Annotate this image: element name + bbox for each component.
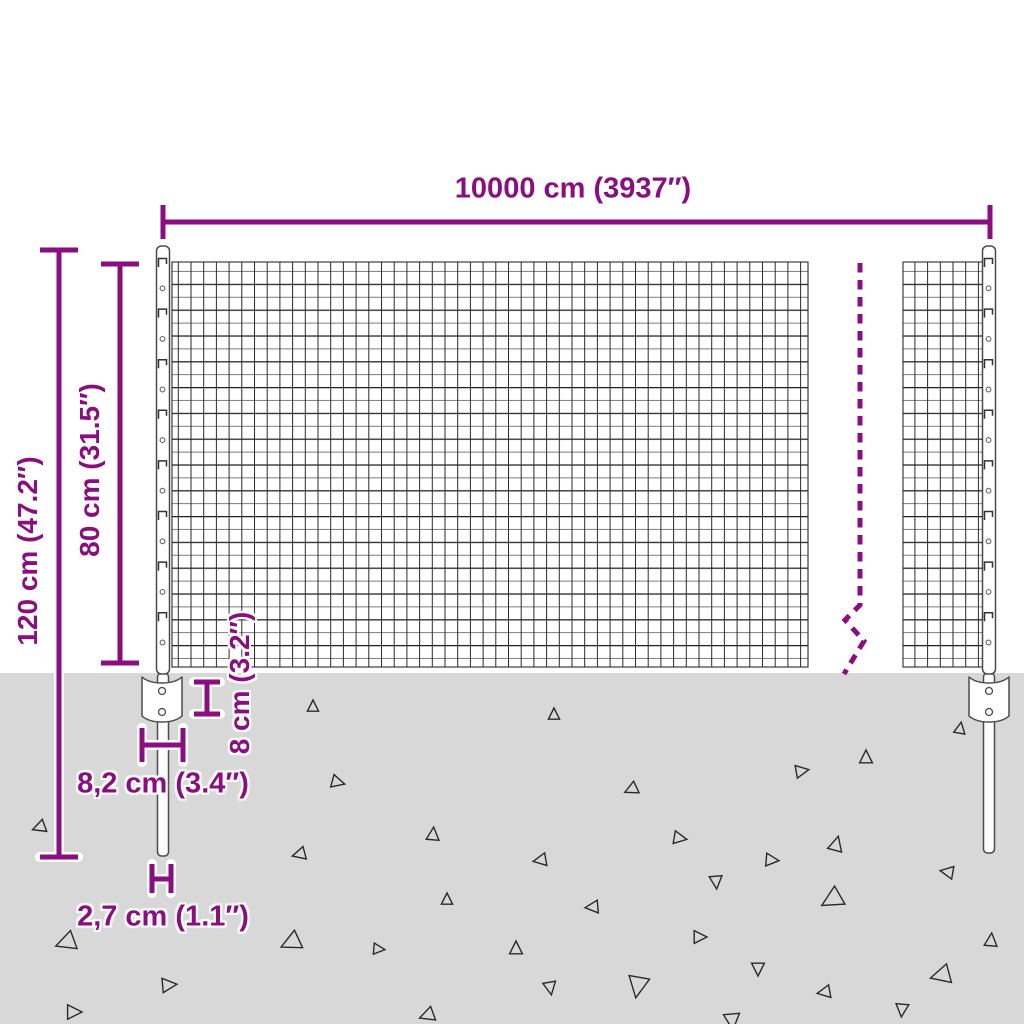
- soil-triangle: [817, 886, 845, 914]
- post-hole: [986, 488, 991, 493]
- dim-post-diameter-label: 2,7 cm (1.1″): [77, 903, 249, 932]
- soil-triangle: [291, 847, 307, 863]
- fence-diagram-drawing: [0, 0, 1024, 1024]
- soil-triangle: [694, 931, 707, 944]
- dim-width-line: [163, 205, 990, 239]
- soil-triangle: [895, 1004, 909, 1018]
- soil-triangle: [752, 963, 765, 976]
- soil-triangle: [816, 985, 831, 1000]
- dim-width-label: 10000 cm (3937″): [455, 175, 691, 204]
- plate-hole: [159, 709, 166, 716]
- post-hole: [986, 286, 991, 291]
- post-hole: [986, 640, 991, 645]
- soil-triangle: [417, 1006, 435, 1024]
- soil-triangle: [162, 977, 178, 993]
- dim-total-height-line: [40, 250, 78, 857]
- plate-hole: [986, 709, 993, 716]
- post-hole: [986, 590, 991, 595]
- soil-triangle: [795, 763, 810, 778]
- dim-anchor-width-label: 8,2 cm (3.4″): [77, 770, 249, 799]
- soil-triangle: [584, 900, 598, 914]
- soil-triangle: [543, 981, 558, 996]
- post-hole: [160, 539, 165, 544]
- soil-triangle: [277, 930, 303, 956]
- post-hole: [160, 488, 165, 493]
- soil-triangle: [766, 853, 780, 867]
- plate-hole: [159, 688, 166, 695]
- soil-triangle: [373, 943, 385, 955]
- soil-triangle: [548, 708, 559, 719]
- mesh-panel-continued: [903, 262, 983, 667]
- soil-triangle: [331, 775, 347, 791]
- dim-anchor-height-marker: [194, 682, 220, 714]
- post-hole: [160, 387, 165, 392]
- soil-triangle: [441, 893, 452, 904]
- soil-triangle: [939, 864, 954, 879]
- soil-triangle: [928, 964, 952, 988]
- soil-triangle: [860, 750, 873, 763]
- soil-triangle: [622, 781, 639, 798]
- dim-total-height-label: 120 cm (47.2″): [14, 456, 42, 645]
- post-hole: [986, 539, 991, 544]
- soil-triangle: [532, 853, 547, 868]
- panel-break-dashed-line: [844, 263, 864, 674]
- soil-triangle: [30, 819, 46, 835]
- dim-mesh-height-line: [101, 264, 139, 663]
- soil-triangle: [954, 721, 967, 734]
- mesh-panel-main: [172, 262, 808, 667]
- soil-triangle: [673, 831, 688, 846]
- soil-triangle: [52, 931, 77, 956]
- soil-triangle: [68, 1005, 82, 1019]
- dim-anchor-height-label: 8 cm (3.2″): [226, 612, 254, 755]
- post-hole: [986, 387, 991, 392]
- post-hole: [160, 286, 165, 291]
- soil-triangle: [626, 976, 650, 1000]
- post-hole: [160, 640, 165, 645]
- soil-triangle: [828, 834, 846, 852]
- post-hole: [160, 337, 165, 342]
- dim-post-diameter-marker: [152, 864, 171, 893]
- soil-triangle: [724, 1013, 741, 1024]
- post-hole: [986, 337, 991, 342]
- soil-triangle: [984, 932, 998, 946]
- post-hole: [160, 438, 165, 443]
- soil-triangle: [307, 700, 318, 711]
- plate-hole: [986, 688, 993, 695]
- soil-triangle: [426, 826, 440, 840]
- dim-mesh-height-label: 80 cm (31.5″): [76, 383, 104, 557]
- post-hole: [986, 438, 991, 443]
- soil-triangle: [709, 876, 723, 890]
- soil-triangle: [510, 941, 523, 954]
- post-hole: [160, 590, 165, 595]
